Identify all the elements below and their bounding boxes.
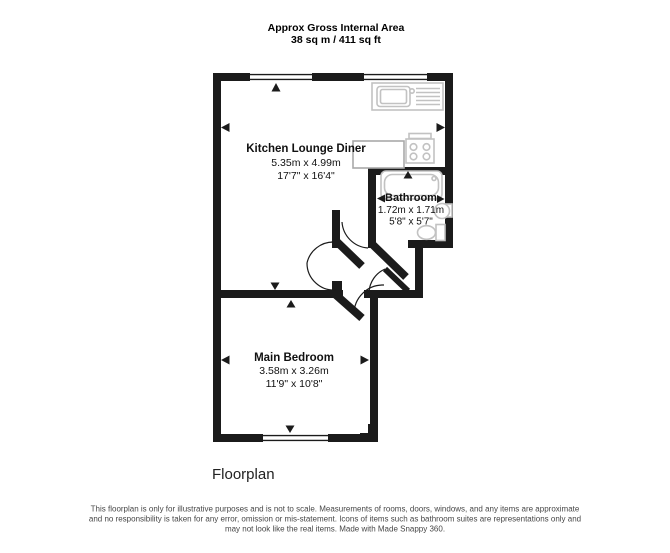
measure-arrow-right-icon xyxy=(361,356,370,365)
hall-diagonal-upper xyxy=(334,239,362,266)
bathroom-door-arc xyxy=(342,222,368,248)
measure-arrow-up-icon xyxy=(287,300,296,308)
window-kitchen-1 xyxy=(250,73,312,82)
disclaimer-line-3: may not look like the real items. Made w… xyxy=(225,525,445,534)
bathroom-metric: 1.72m x 1.71m xyxy=(378,205,444,216)
measure-arrow-up-icon xyxy=(272,83,281,92)
entrance-door-arc xyxy=(369,269,385,292)
wall-bedroom-right xyxy=(370,293,378,442)
measure-arrow-down-icon xyxy=(286,426,295,434)
gross-internal-area-title: Approx Gross Internal Area xyxy=(268,22,405,34)
floorplan-page: Approx Gross Internal Area 38 sq m / 411… xyxy=(0,0,670,553)
wall-bathroom-bottom xyxy=(408,240,453,248)
window-kitchen-2 xyxy=(364,73,427,82)
corner-pillar-notch xyxy=(360,424,368,433)
measure-arrow-left-icon xyxy=(221,123,230,132)
kitchen-name: Kitchen Lounge Diner xyxy=(246,143,366,155)
wall-bathroom-left xyxy=(368,167,376,248)
bedroom-label: Main Bedroom 3.58m x 3.26m 11'9" x 10'8" xyxy=(254,352,334,390)
wall-bedroom-top xyxy=(213,290,343,298)
measure-arrow-right-icon xyxy=(437,123,446,132)
hob-icon xyxy=(406,134,434,164)
floorplan-caption: Floorplan xyxy=(212,466,275,483)
window-bedroom xyxy=(263,434,328,443)
floorplan-drawing: Approx Gross Internal Area 38 sq m / 411… xyxy=(0,0,670,553)
wall-left xyxy=(213,73,221,442)
kitchen-imperial: 17'7" x 16'4" xyxy=(277,170,335,182)
kitchen-sink-icon xyxy=(372,83,443,110)
disclaimer-line-1: This floorplan is only for illustrative … xyxy=(91,505,580,514)
measure-arrow-down-icon xyxy=(271,283,280,291)
bedroom-metric: 3.58m x 3.26m xyxy=(259,365,329,377)
wall-stub xyxy=(332,281,342,293)
wall-right xyxy=(445,73,453,248)
gross-internal-area-value: 38 sq m / 411 sq ft xyxy=(291,34,381,46)
bathroom-name: Bathroom xyxy=(385,192,437,204)
measure-arrow-left-icon xyxy=(221,356,230,365)
header: Approx Gross Internal Area 38 sq m / 411… xyxy=(268,22,405,46)
kitchen-metric: 5.35m x 4.99m xyxy=(271,157,341,169)
bedroom-imperial: 11'9" x 10'8" xyxy=(266,378,323,390)
kitchen-door-arc-lower xyxy=(307,263,336,290)
disclaimer-line-2: and no responsibility is taken for any e… xyxy=(89,515,581,524)
bathroom-imperial: 5'8" x 5'7" xyxy=(389,217,433,228)
walls xyxy=(213,73,453,442)
kitchen-label: Kitchen Lounge Diner 5.35m x 4.99m 17'7"… xyxy=(246,143,366,182)
wall-vestibule-right xyxy=(415,244,423,298)
kitchen-door-arc-upper xyxy=(307,242,334,263)
disclaimer: This floorplan is only for illustrative … xyxy=(89,505,581,534)
bedroom-name: Main Bedroom xyxy=(254,352,334,364)
bathroom-label: Bathroom 1.72m x 1.71m 5'8" x 5'7" xyxy=(378,192,444,228)
